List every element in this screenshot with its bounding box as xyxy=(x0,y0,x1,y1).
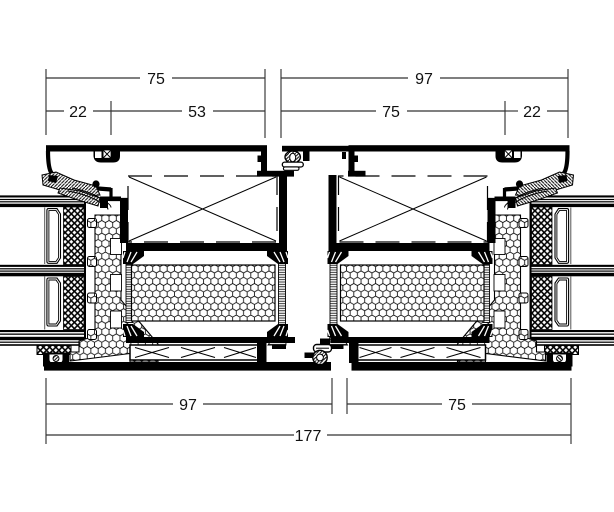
svg-text:75: 75 xyxy=(147,71,165,88)
svg-text:97: 97 xyxy=(179,397,197,414)
svg-text:53: 53 xyxy=(188,104,206,121)
svg-text:177: 177 xyxy=(295,428,322,445)
svg-text:97: 97 xyxy=(415,71,433,88)
svg-text:22: 22 xyxy=(523,104,541,121)
svg-text:75: 75 xyxy=(448,397,466,414)
svg-text:22: 22 xyxy=(69,104,87,121)
svg-text:75: 75 xyxy=(382,104,400,121)
